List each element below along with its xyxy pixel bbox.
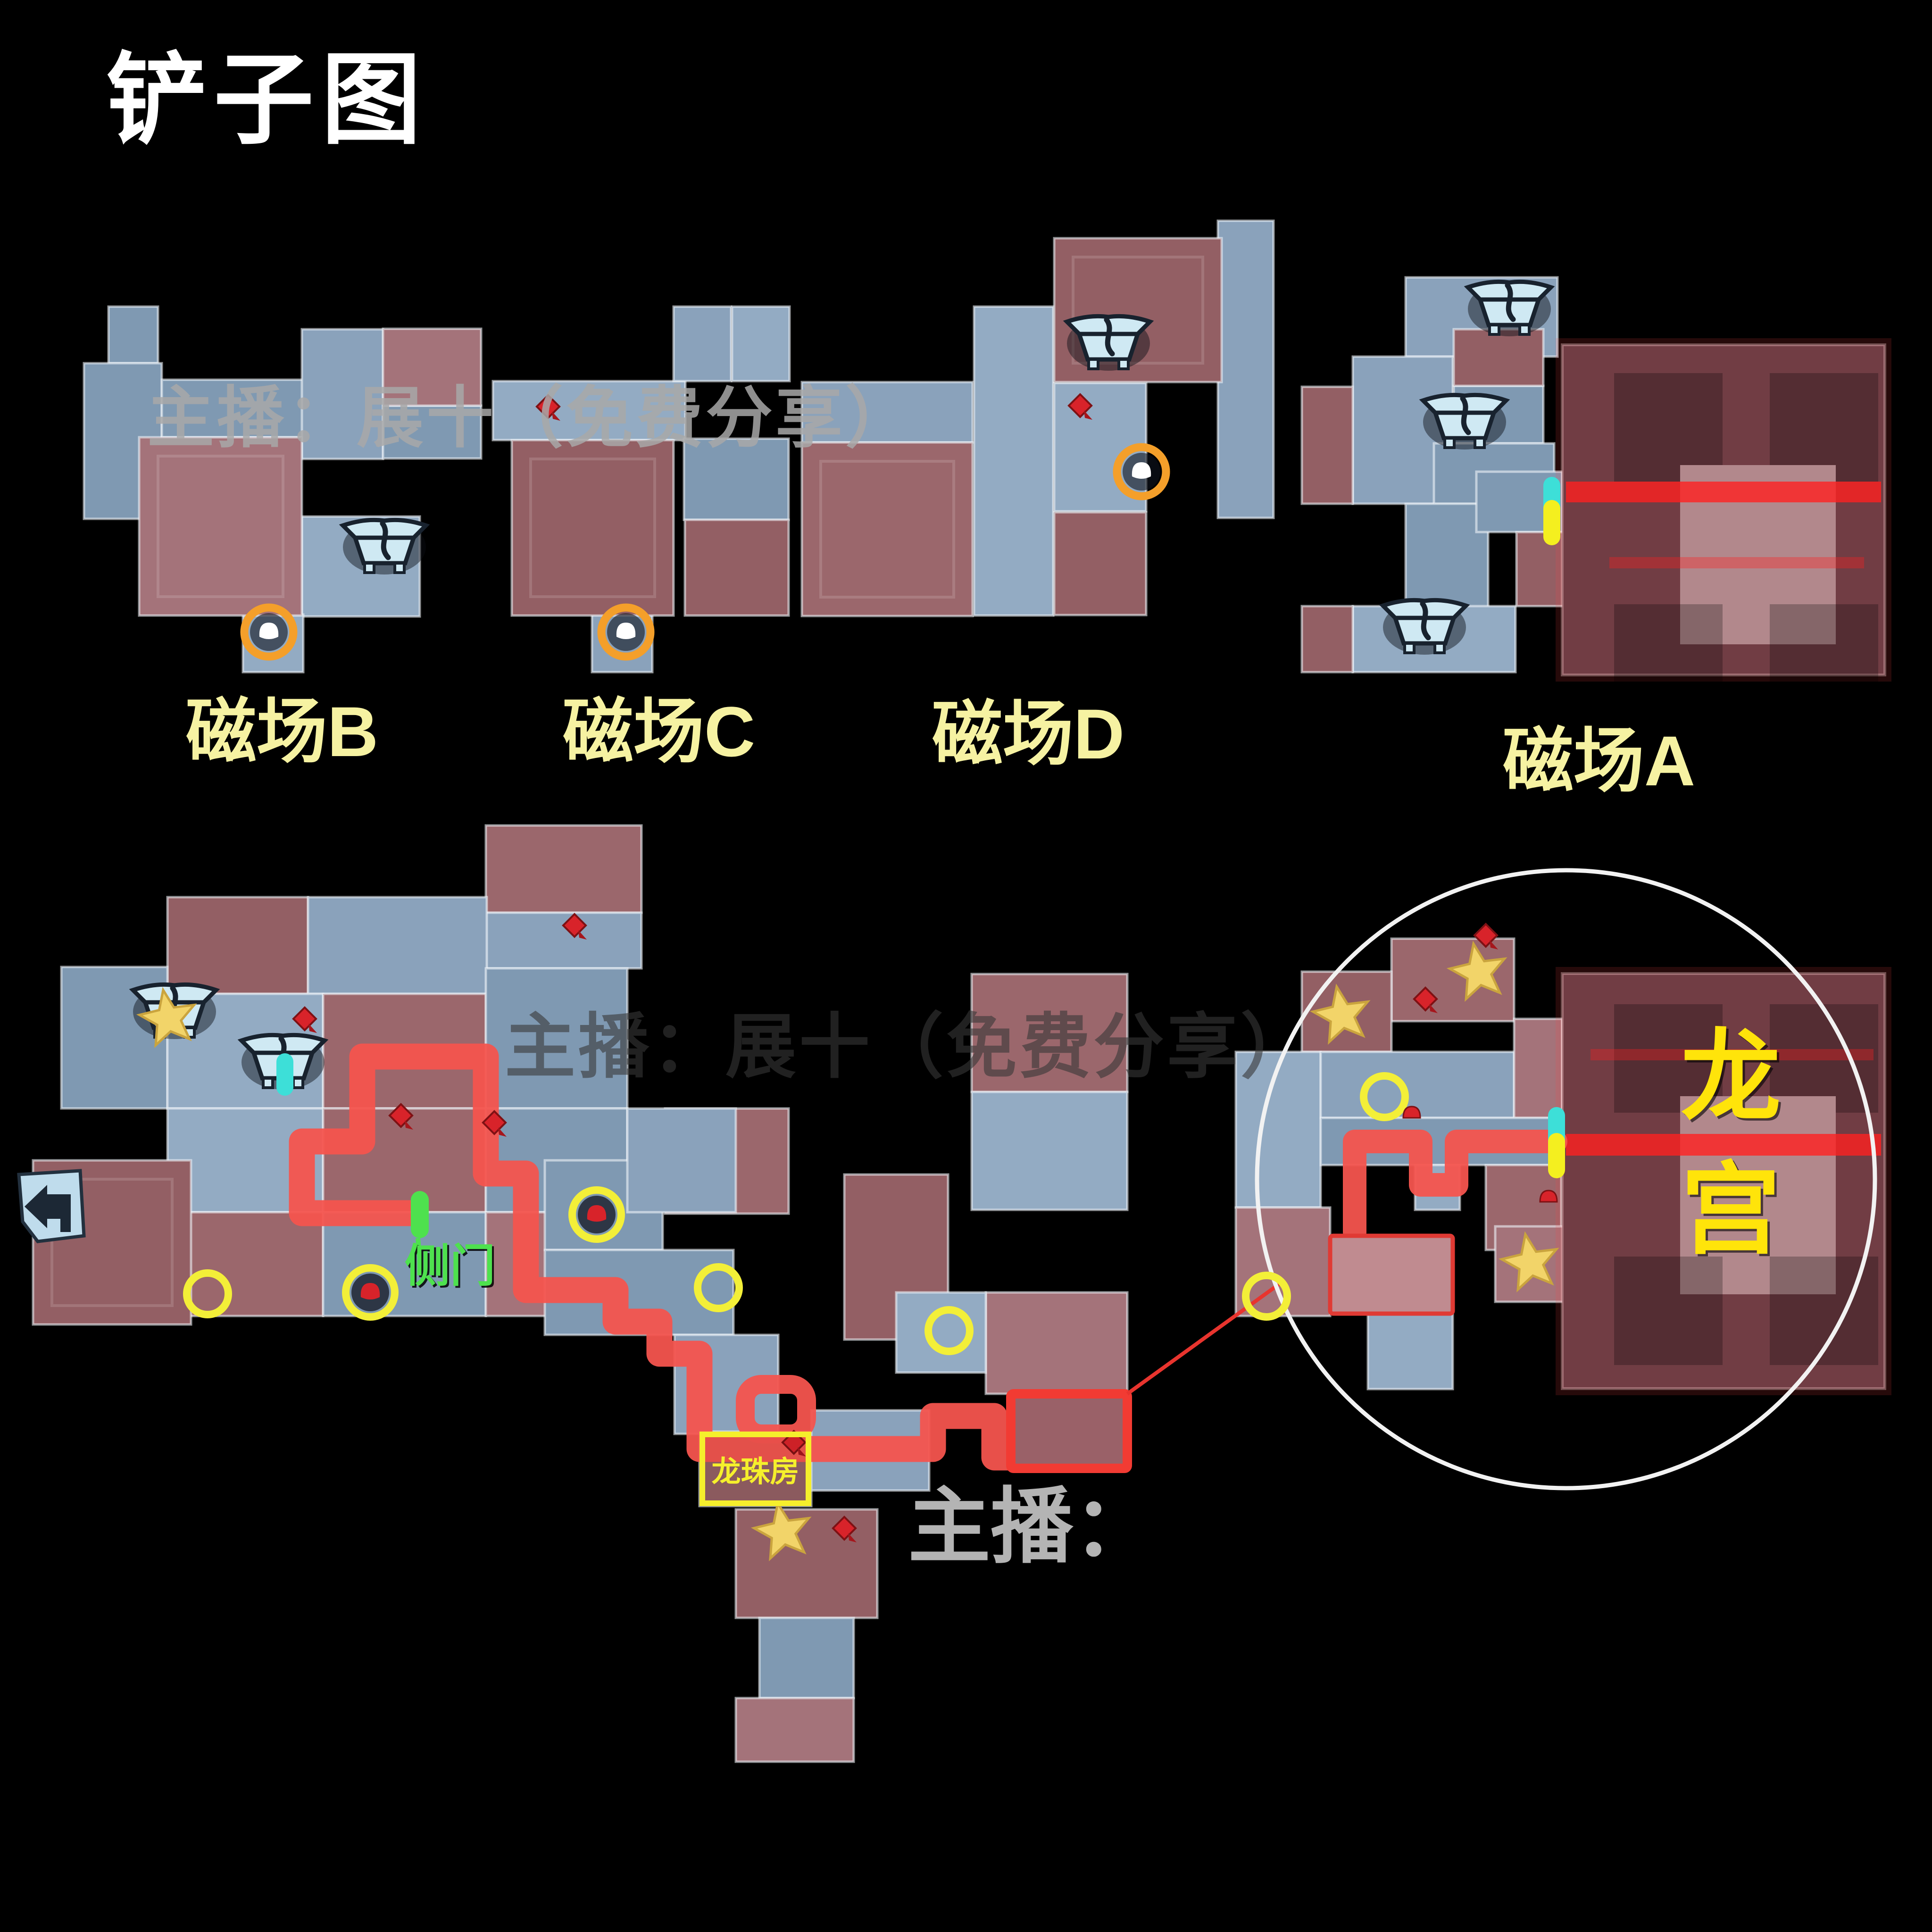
map-tile-room bbox=[139, 437, 302, 616]
map-tile-corridor bbox=[972, 1092, 1127, 1210]
palace-block bbox=[1614, 604, 1723, 713]
map-tile-corridor bbox=[1218, 221, 1274, 518]
chest-icon bbox=[343, 520, 426, 575]
map-tile-room bbox=[486, 825, 641, 913]
label-field-c: 磁场C bbox=[563, 675, 755, 777]
chest-icon bbox=[1383, 600, 1466, 655]
watermark-bottom: 主播： bbox=[908, 1460, 1156, 1579]
map-tile-corridor bbox=[486, 913, 641, 968]
label-field-a: 磁场A bbox=[1503, 704, 1695, 806]
exit-arrow-icon bbox=[19, 1171, 84, 1241]
dragon-ball-room-box: 龙珠房 bbox=[700, 1432, 811, 1506]
urn-orange-ring-icon bbox=[244, 608, 293, 657]
yellow-ring-pot-icon bbox=[346, 1268, 395, 1317]
label-dragon-ball-room: 龙珠房 bbox=[711, 1448, 799, 1490]
highlight-box bbox=[1011, 1394, 1127, 1468]
urn-orange-ring-icon bbox=[1117, 447, 1166, 496]
map-tile-room bbox=[736, 1509, 877, 1618]
watermark-top: 主播：展十（免费分享） bbox=[147, 363, 915, 460]
map-tile-room bbox=[167, 897, 308, 994]
map-tile-room bbox=[685, 520, 789, 616]
map-tile-room bbox=[1391, 939, 1514, 1021]
laser-beam bbox=[1566, 482, 1881, 502]
label-field-d: 磁场D bbox=[932, 677, 1124, 779]
map-tile-room bbox=[1454, 329, 1543, 386]
map-tile-room bbox=[986, 1292, 1127, 1394]
red-dome-icon bbox=[1540, 1191, 1557, 1202]
map-tile-room bbox=[512, 440, 674, 616]
map-tile-room bbox=[1054, 512, 1146, 615]
entrance-yellow-marker bbox=[1548, 1133, 1565, 1178]
map-tile-corridor bbox=[108, 307, 158, 363]
map-tile-corridor bbox=[974, 307, 1053, 616]
chest-icon bbox=[1423, 395, 1506, 450]
teleport-cyan-marker bbox=[276, 1053, 293, 1096]
map-tile-corridor bbox=[308, 897, 487, 994]
highlight-box bbox=[1330, 1236, 1453, 1314]
map-tile-room bbox=[736, 1698, 854, 1762]
yellow-ring-pot-icon bbox=[572, 1190, 621, 1239]
page-title: 铲子图 bbox=[106, 19, 429, 164]
map-tile-corridor bbox=[1368, 1314, 1453, 1389]
chest-icon bbox=[1468, 282, 1551, 336]
map-tile-corridor bbox=[627, 1108, 736, 1212]
palace-block bbox=[1770, 604, 1878, 713]
map-tile-room bbox=[802, 442, 973, 616]
red-dome-icon bbox=[1403, 1107, 1420, 1118]
laser-beam bbox=[1609, 557, 1864, 568]
urn-orange-ring-icon bbox=[601, 608, 650, 657]
label-field-b: 磁场B bbox=[186, 675, 378, 777]
shovel-map-guide: 铲子图 主播：展十（免费分享） 主播：展十（免费分享） 主播： 磁场B 磁场C … bbox=[0, 0, 1932, 1932]
map-tile-room bbox=[1514, 1019, 1562, 1118]
map-tile-room bbox=[1302, 606, 1353, 672]
entrance-yellow-marker bbox=[1543, 500, 1560, 545]
map-tile-corridor bbox=[759, 1618, 854, 1698]
watermark-middle: 主播：展十（免费分享） bbox=[505, 990, 1314, 1092]
label-dragon-palace: 龙宫 bbox=[1650, 1024, 1795, 1290]
map-tile-room bbox=[1302, 387, 1353, 504]
map-canvas bbox=[0, 0, 1932, 1932]
chest-icon bbox=[1067, 316, 1150, 371]
label-side-door: 侧门 bbox=[405, 1229, 495, 1295]
callout-connector-line bbox=[1127, 1282, 1282, 1394]
